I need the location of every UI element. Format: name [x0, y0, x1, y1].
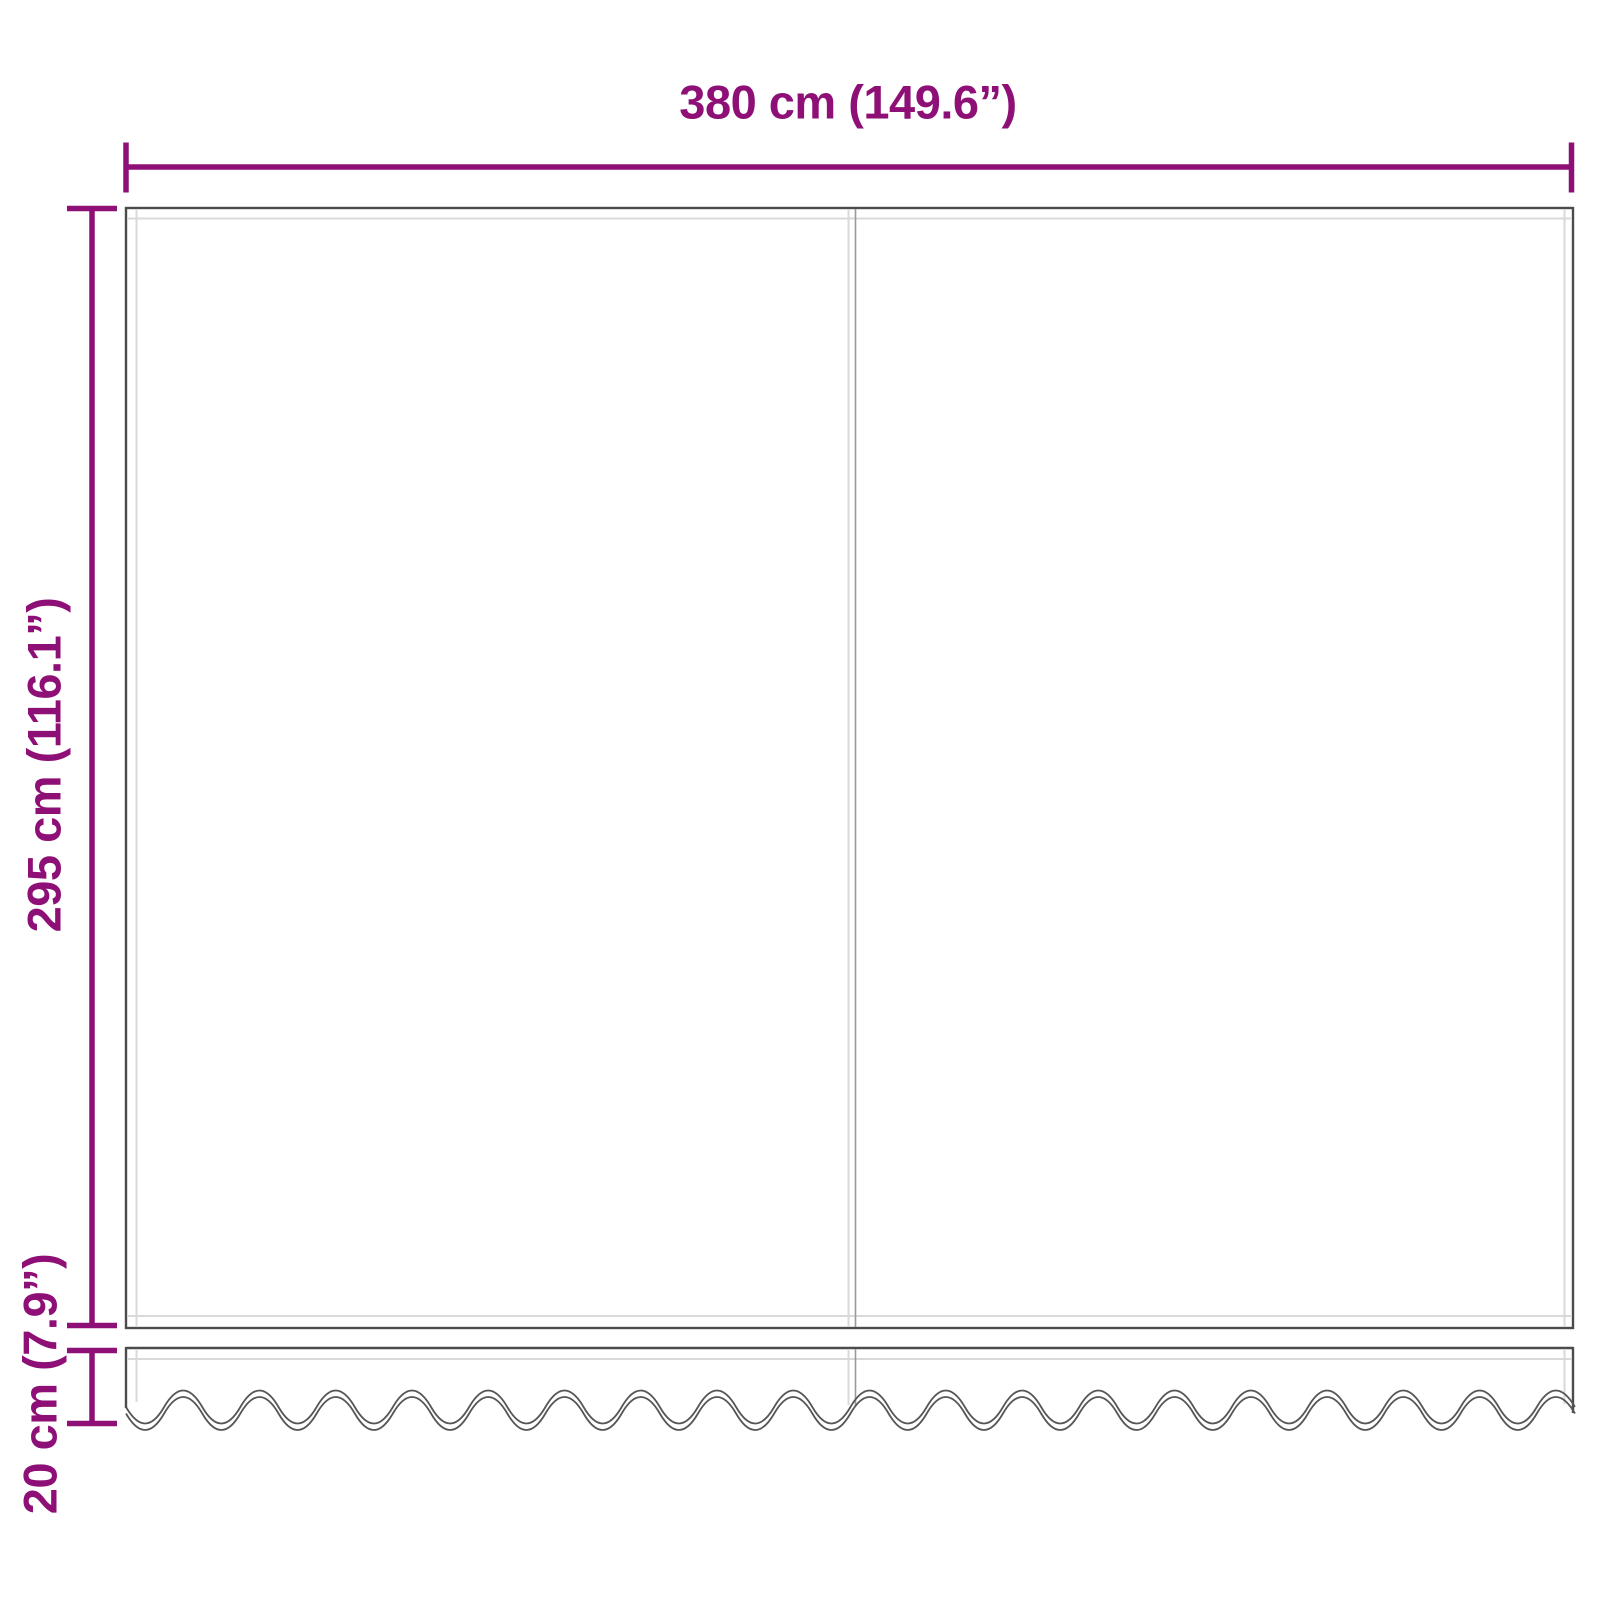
- awning-fabric-drawing: [0, 0, 1600, 1600]
- valance-wavy-edge-upper: [126, 1391, 1575, 1424]
- dimension-diagram: 380 cm (149.6”) 295 cm (116.1”) 20 cm (7…: [0, 0, 1600, 1600]
- dimension-lines: [67, 143, 1572, 1424]
- width-dimension-label: 380 cm (149.6”): [679, 79, 1016, 126]
- height-dimension-label: 295 cm (116.1”): [21, 598, 68, 933]
- main-fabric-panel: [126, 208, 1573, 1328]
- valance-strip: [126, 1347, 1575, 1430]
- valance-dimension-label: 20 cm (7.9”): [17, 1254, 64, 1514]
- valance-wavy-edge-lower: [126, 1397, 1575, 1430]
